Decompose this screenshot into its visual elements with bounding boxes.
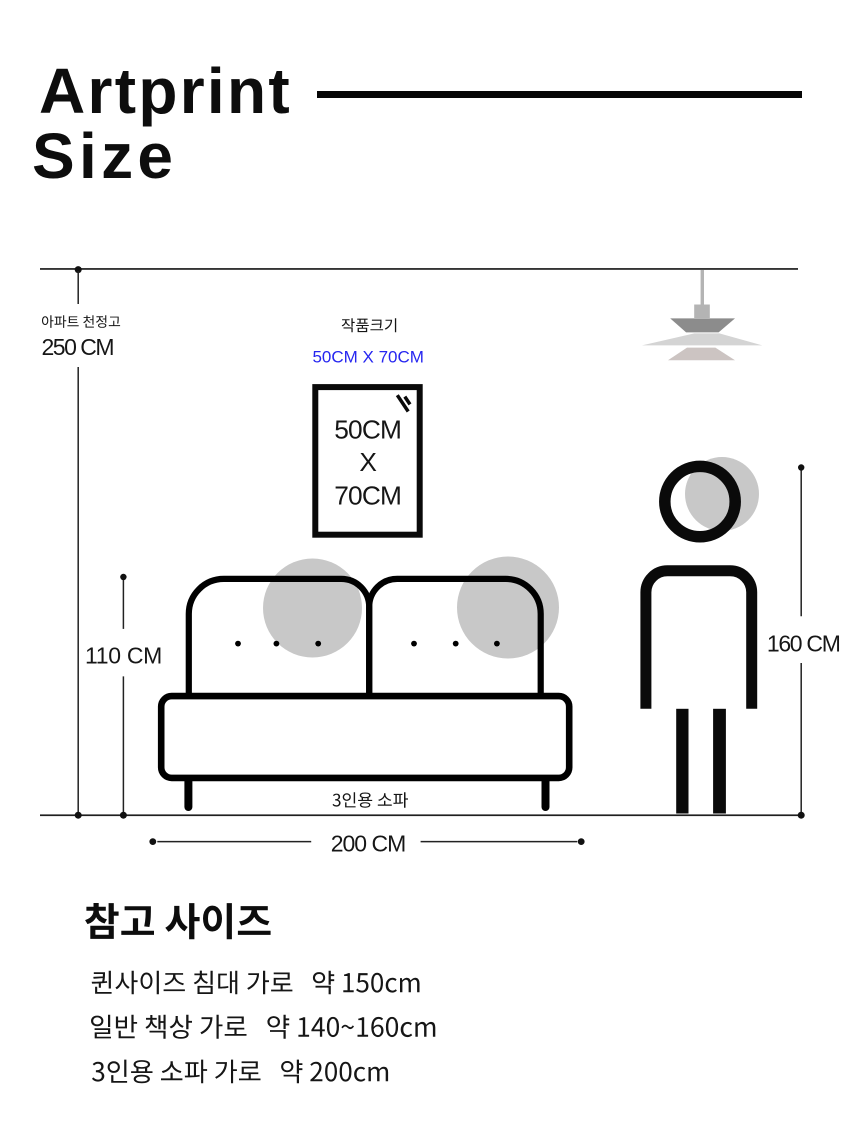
svg-text:250 CM: 250 CM [42,334,114,360]
svg-text:X: X [359,447,376,477]
svg-text:Size: Size [32,120,177,192]
svg-text:70CM: 70CM [334,481,401,511]
svg-text:200 CM: 200 CM [331,831,406,857]
svg-text:110 CM: 110 CM [85,643,162,669]
svg-text:50CM X 70CM: 50CM X 70CM [312,347,423,366]
svg-text:50CM: 50CM [334,414,401,444]
svg-text:160 CM: 160 CM [767,631,840,657]
svg-text:Artprint: Artprint [39,55,292,127]
